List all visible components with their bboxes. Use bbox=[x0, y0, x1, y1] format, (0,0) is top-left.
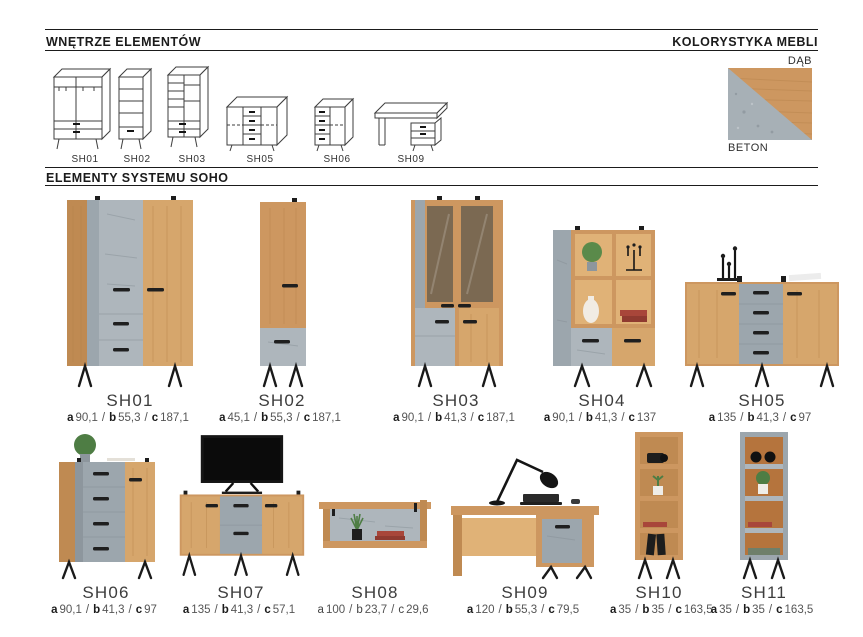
product-code: SH02 bbox=[214, 391, 350, 411]
product-card-sh08: SH08 a100/b23,7/c29,6 bbox=[312, 428, 438, 616]
wireframe-wardrobe-icon bbox=[50, 61, 120, 153]
wireframe-shelf-cabinet-icon bbox=[115, 61, 159, 153]
product-card-sh03: SH03 a90,1/b41,3/c187,1 bbox=[386, 186, 526, 424]
product-card-sh09: SH09 a120/b55,3/c79,5 bbox=[442, 428, 608, 616]
product-card-sh06: SH06 a90,1/b41,3/c97 bbox=[36, 428, 176, 616]
product-code: SH05 bbox=[676, 391, 848, 411]
interior-item-sh03: SH03 bbox=[164, 57, 220, 165]
header-underline bbox=[45, 50, 818, 51]
wireframe-chest-icon bbox=[311, 89, 363, 153]
sh07-tv-stand-image bbox=[174, 430, 308, 580]
interior-label: SH01 bbox=[50, 154, 120, 165]
interior-label: SH09 bbox=[371, 154, 451, 165]
product-dims: a90,1/b41,3/c187,1 bbox=[386, 412, 526, 424]
sh03-vitrine-image bbox=[401, 194, 511, 388]
product-card-sh10: SH10 a35/b35/c163,5 bbox=[610, 428, 708, 616]
interior-item-sh09: SH09 bbox=[371, 95, 451, 165]
interior-item-sh01: SH01 bbox=[50, 61, 120, 165]
interior-label: SH02 bbox=[115, 154, 159, 165]
product-dims: a35/b35/c163,5 bbox=[610, 604, 708, 616]
product-card-sh11: SH11 a35/b35/c163,5 bbox=[710, 428, 818, 616]
interior-item-sh05: SH05 bbox=[223, 89, 297, 165]
product-code: SH06 bbox=[36, 583, 176, 603]
section-title-interiors: WNĘTRZE ELEMENTÓW bbox=[46, 35, 201, 49]
product-card-sh01: SH01 a90,1/b55,3/c187,1 bbox=[46, 186, 214, 424]
sh02-cabinet-image bbox=[242, 194, 322, 388]
product-code: SH11 bbox=[710, 583, 818, 603]
product-code: SH08 bbox=[312, 583, 438, 603]
product-code: SH07 bbox=[174, 583, 308, 603]
interior-item-sh02: SH02 bbox=[115, 61, 159, 165]
sh04-bookcase-image bbox=[545, 220, 660, 388]
color-swatch bbox=[728, 68, 812, 140]
product-dims: a100/b23,7/c29,6 bbox=[312, 604, 438, 616]
product-code: SH09 bbox=[442, 583, 608, 603]
mid-rule bbox=[45, 167, 818, 168]
product-code: SH03 bbox=[386, 391, 526, 411]
section-title-elements: ELEMENTY SYSTEMU SOHO bbox=[46, 171, 229, 185]
product-dims: a90,1/b55,3/c187,1 bbox=[46, 412, 214, 424]
sh01-wardrobe-image bbox=[55, 194, 205, 388]
interior-label: SH03 bbox=[164, 154, 220, 165]
sh05-sideboard-image bbox=[677, 246, 847, 388]
wireframe-vitrine-icon bbox=[164, 57, 220, 153]
product-card-sh04: SH04 a90,1/b41,3/c137 bbox=[530, 186, 674, 424]
sh09-desk-image bbox=[445, 440, 605, 580]
product-card-sh02: SH02 a45,1/b55,3/c187,1 bbox=[214, 186, 350, 424]
product-card-sh07: SH07 a135/b41,3/c57,1 bbox=[174, 428, 308, 616]
interior-item-sh06: SH06 bbox=[311, 89, 363, 165]
wireframe-sideboard-icon bbox=[223, 89, 297, 153]
interior-label: SH05 bbox=[223, 154, 297, 165]
product-card-sh05: SH05 a135/b41,3/c97 bbox=[676, 186, 848, 424]
sh08-wall-shelf-image bbox=[315, 496, 435, 554]
interiors-row: SH01 SH02 bbox=[45, 53, 515, 165]
top-rule bbox=[45, 29, 818, 30]
product-code: SH01 bbox=[46, 391, 214, 411]
product-dims: a35/b35/c163,5 bbox=[710, 604, 818, 616]
product-dims: a135/b41,3/c57,1 bbox=[174, 604, 308, 616]
sh11-shelf-unit-image bbox=[728, 428, 800, 580]
product-dims: a90,1/b41,3/c97 bbox=[36, 604, 176, 616]
interior-label: SH06 bbox=[311, 154, 363, 165]
sh10-shelf-unit-image bbox=[623, 428, 695, 580]
section-title-colors: KOLORYSTYKA MEBLI bbox=[672, 35, 818, 49]
wireframe-desk-icon bbox=[371, 95, 451, 153]
sh06-chest-image bbox=[49, 430, 164, 580]
product-dims: a135/b41,3/c97 bbox=[676, 412, 848, 424]
product-dims: a120/b55,3/c79,5 bbox=[442, 604, 608, 616]
oak-color-label: DĄB bbox=[728, 55, 812, 67]
product-code: SH10 bbox=[610, 583, 708, 603]
product-code: SH04 bbox=[530, 391, 674, 411]
concrete-color-label: BETON bbox=[728, 142, 768, 154]
product-dims: a45,1/b55,3/c187,1 bbox=[214, 412, 350, 424]
product-dims: a90,1/b41,3/c137 bbox=[530, 412, 674, 424]
